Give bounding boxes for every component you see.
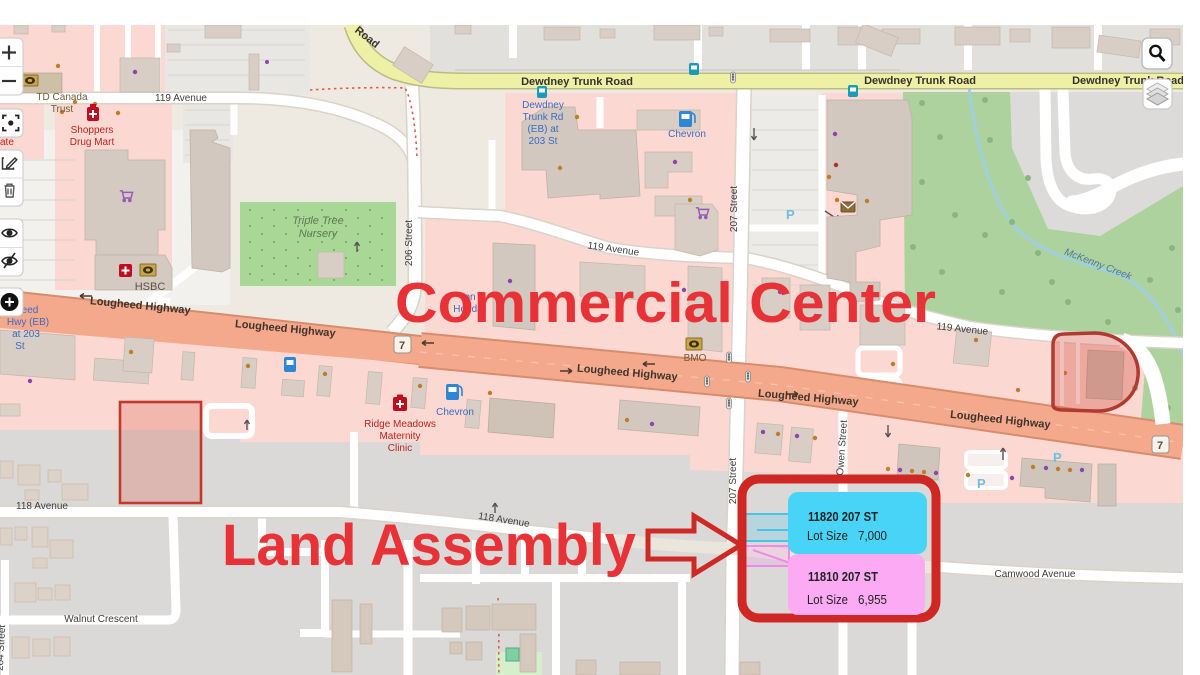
svg-text:6,955: 6,955 (858, 592, 887, 607)
svg-text:Lot Size: Lot Size (807, 592, 848, 607)
svg-text:P: P (786, 207, 795, 222)
svg-text:Maternity: Maternity (379, 431, 420, 442)
svg-text:Land Assembly: Land Assembly (222, 513, 636, 578)
svg-text:Walnut Crescent: Walnut Crescent (64, 614, 138, 625)
svg-text:eed: eed (22, 305, 39, 316)
svg-text:Dewdney: Dewdney (522, 100, 564, 111)
svg-text:Trunk Rd: Trunk Rd (523, 112, 564, 123)
svg-text:Hwy (EB): Hwy (EB) (7, 317, 49, 328)
svg-text:207 Street: 207 Street (729, 186, 740, 232)
svg-text:TD Canada: TD Canada (36, 92, 88, 103)
svg-text:118 Avenue: 118 Avenue (16, 501, 68, 512)
svg-text:119 Avenue: 119 Avenue (155, 93, 207, 104)
svg-text:Commercial Center: Commercial Center (395, 271, 936, 335)
svg-text:P: P (977, 476, 986, 491)
svg-text:Chevron: Chevron (436, 407, 474, 418)
svg-text:7: 7 (399, 340, 405, 352)
svg-text:Ridge Meadows: Ridge Meadows (364, 419, 436, 430)
svg-text:7: 7 (1157, 440, 1163, 452)
svg-text:207 Street: 207 Street (728, 458, 739, 504)
svg-text:BMO: BMO (684, 353, 707, 364)
svg-text:Trust: Trust (51, 104, 74, 115)
svg-text:ate: ate (0, 137, 14, 148)
svg-text:at 203: at 203 (12, 329, 40, 340)
svg-text:Camwood Avenue: Camwood Avenue (995, 569, 1076, 580)
svg-text:Clinic: Clinic (388, 443, 412, 454)
svg-text:Lot Size: Lot Size (807, 528, 848, 543)
svg-text:206 Street: 206 Street (404, 220, 415, 266)
svg-text:Dewdney Trunk Road: Dewdney Trunk Road (864, 75, 976, 87)
svg-text:Dewdney Trunk Road: Dewdney Trunk Road (521, 76, 633, 88)
svg-text:HSBC: HSBC (135, 281, 166, 293)
svg-text:Chevron: Chevron (668, 129, 706, 140)
svg-text:(EB) at: (EB) at (527, 124, 558, 135)
svg-text:203 St: 203 St (529, 136, 558, 147)
svg-text:7,000: 7,000 (858, 528, 887, 543)
svg-text:Shoppers: Shoppers (71, 125, 114, 136)
svg-text:St: St (15, 341, 25, 352)
svg-text:11820 207 ST: 11820 207 ST (808, 509, 878, 524)
svg-text:P: P (1053, 450, 1062, 465)
svg-text:11810 207 ST: 11810 207 ST (808, 569, 878, 584)
svg-text:Triple Tree: Triple Tree (292, 215, 344, 227)
svg-text:Drug Mart: Drug Mart (70, 137, 115, 148)
svg-text:Nursery: Nursery (299, 228, 339, 240)
